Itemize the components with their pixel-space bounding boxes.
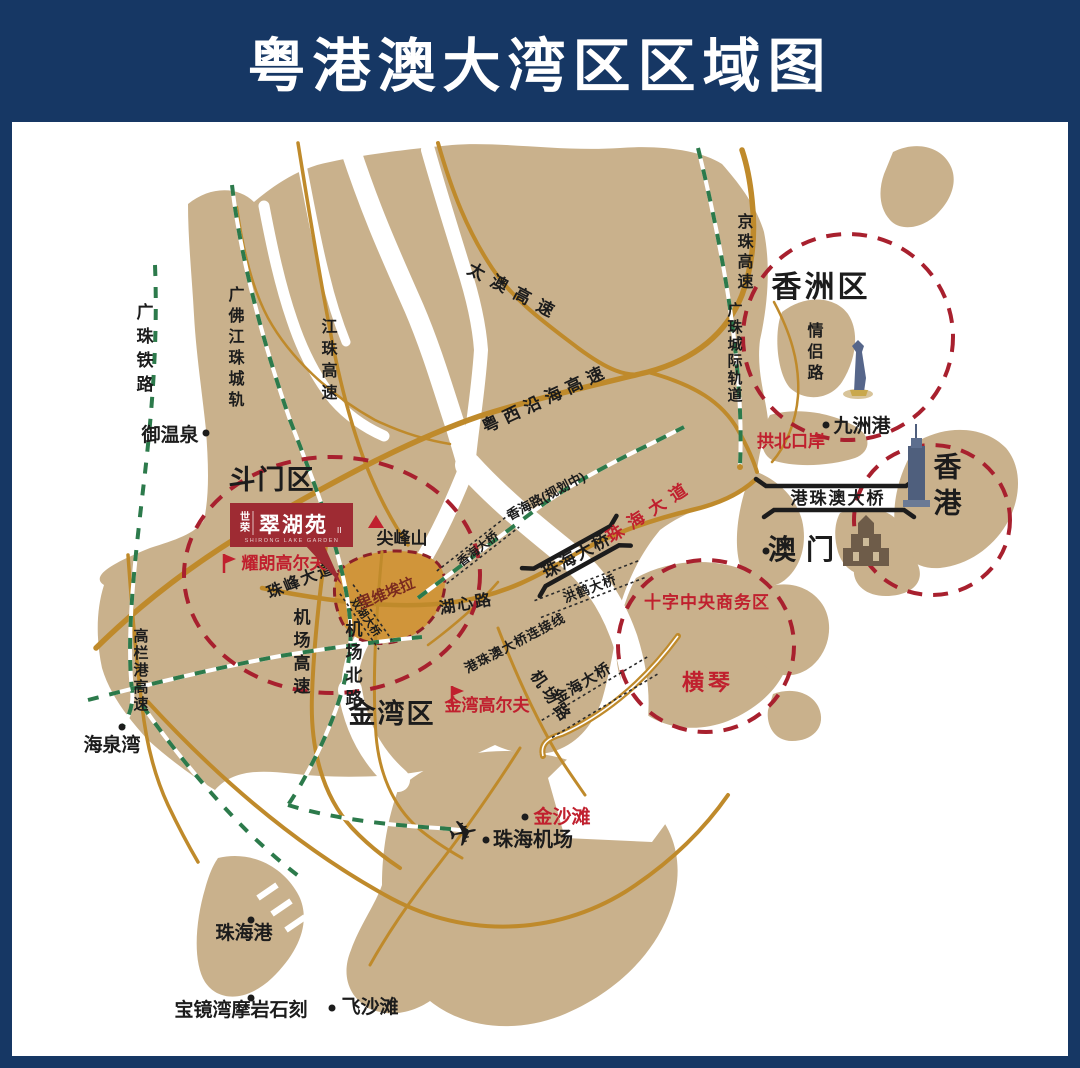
road-jichang-beilu-label: 机场北路 <box>343 619 363 712</box>
feishatan-dot <box>329 1005 336 1012</box>
road-qinglv-label: 情侣路 <box>805 321 824 385</box>
bay-area-map: 港珠澳大桥 珠海大桥 洪鹤大桥 香海大桥 双湖大桥 金海大桥 <box>12 122 1068 1056</box>
jinshatan-dot <box>522 814 529 821</box>
jiuzhou-dot <box>823 422 830 429</box>
place-baojing: 宝镜湾摩岩石刻 <box>174 998 307 1021</box>
road-jingzhu-label: 京珠高速 <box>735 212 754 293</box>
place-yaolang-golf: 耀朗高尔夫 <box>242 553 328 573</box>
yuwenquan-dot <box>203 430 210 437</box>
cbd-label: 十字中央商务区 <box>644 592 770 612</box>
district-doumen: 斗门区 <box>229 465 316 495</box>
place-gongbei: 拱北口岸 <box>757 431 825 451</box>
place-yuwenquan: 御温泉 <box>140 423 199 446</box>
place-zhuhaigang: 珠海港 <box>215 921 273 944</box>
place-haiquanwan: 海泉湾 <box>83 733 140 756</box>
place-jinwan-golf: 金湾高尔夫 <box>444 695 531 715</box>
logo-suffix: II <box>337 526 341 535</box>
logo-name: 翠湖苑 <box>259 514 328 537</box>
district-hongkong: 香港 <box>931 452 962 524</box>
page-title: 粤港澳大湾区区域图 <box>247 19 832 103</box>
district-macau: 澳门 <box>768 534 844 565</box>
airport-dot <box>483 837 490 844</box>
title-banner: 粤港澳大湾区区域图 <box>0 0 1080 122</box>
place-jiuzhou: 九洲港 <box>832 415 891 437</box>
rail-guangzhu-label: 广珠铁路 <box>134 302 154 399</box>
road-gaolan-label: 高栏港高速 <box>132 627 149 713</box>
place-jianfengshan: 尖峰山 <box>377 528 428 548</box>
logo-subtitle: SHIRONG LAKE GARDEN <box>245 538 340 544</box>
gongbei-rail-end-dot <box>737 464 743 470</box>
hzmb-bridge-label: 港珠澳大桥 <box>791 488 886 508</box>
rail-chengji-label: 广珠城际轨道 <box>726 301 743 404</box>
road-jiangzhu-label: 江珠高速 <box>319 318 338 406</box>
place-airport: 珠海机场 <box>493 827 573 851</box>
district-xiangzhou: 香洲区 <box>772 271 871 304</box>
haiquanwan-dot <box>119 724 126 731</box>
northeast-island <box>880 146 953 227</box>
landmass-group <box>98 144 1018 1026</box>
road-jichang-gaosu-label: 机场高速 <box>291 607 311 700</box>
place-feishatan: 飞沙滩 <box>341 995 398 1018</box>
district-hengqin: 横琴 <box>682 670 734 695</box>
place-jinshatan: 金沙滩 <box>532 805 590 828</box>
map-canvas: 港珠澳大桥 珠海大桥 洪鹤大桥 香海大桥 双湖大桥 金海大桥 <box>12 122 1068 1056</box>
